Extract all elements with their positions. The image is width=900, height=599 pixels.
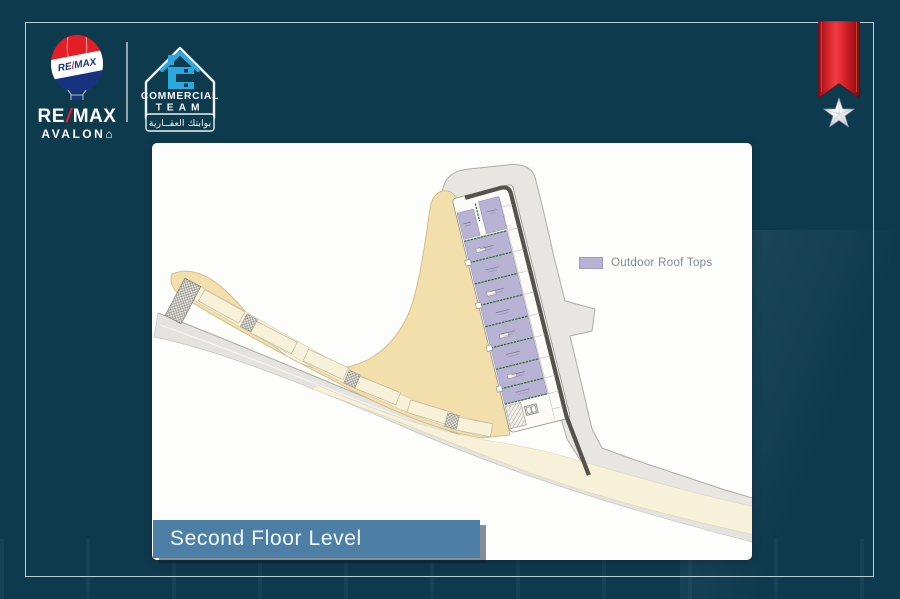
floor-level-banner: Second Floor Level bbox=[153, 520, 480, 558]
remax-logo: RE/MAX RE/MAX AVALON⌂ bbox=[36, 34, 118, 142]
commercial-label: COMMERCIAL bbox=[141, 91, 219, 102]
legend-swatch bbox=[579, 257, 603, 269]
award-ribbon-icon bbox=[817, 21, 863, 135]
arabic-tagline: بوابتك العقــارية bbox=[149, 118, 211, 129]
slide: { "theme": { "bg": "#0e3a4e", "frame": "… bbox=[0, 0, 900, 599]
floor-level-title: Second Floor Level bbox=[170, 527, 362, 551]
remax-office-name: AVALON⌂ bbox=[36, 127, 118, 142]
balloon-basket bbox=[71, 95, 83, 100]
commercial-building-icon bbox=[162, 53, 198, 89]
remax-balloon-icon: RE/MAX bbox=[38, 34, 116, 100]
legend: Outdoor Roof Tops bbox=[579, 257, 712, 269]
floor-plan-drawing bbox=[152, 143, 752, 560]
legend-label: Outdoor Roof Tops bbox=[611, 257, 712, 269]
home-icon: ⌂ bbox=[105, 127, 112, 141]
floor-plan-panel: Outdoor Roof Tops bbox=[152, 143, 752, 560]
remax-wordmark: RE/MAX bbox=[36, 107, 118, 126]
star-icon bbox=[824, 98, 854, 127]
commercial-team-logo: COMMERCIAL TEAM بوابتك العقــارية bbox=[132, 40, 228, 141]
header-divider bbox=[126, 42, 128, 122]
team-label: TEAM bbox=[156, 103, 205, 114]
